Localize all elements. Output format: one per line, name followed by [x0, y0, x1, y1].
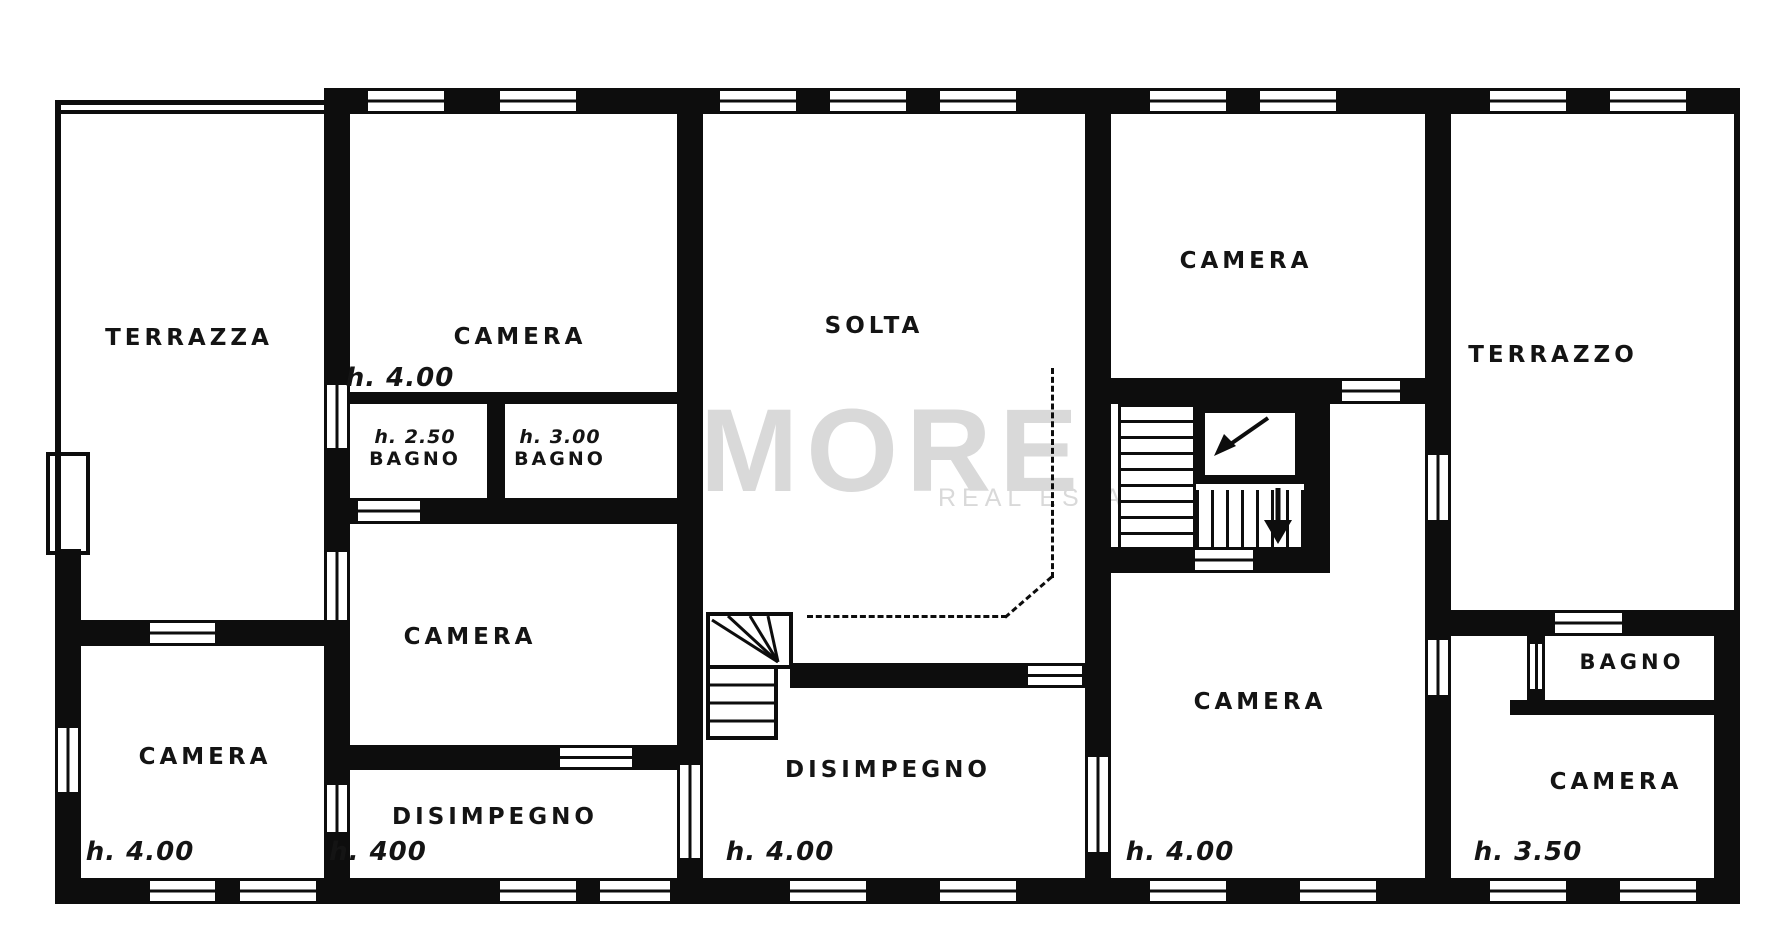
height-label: h. 3.00	[514, 426, 606, 448]
window	[1490, 88, 1566, 114]
room-label-bagno-2: h. 3.00 BAGNO	[514, 426, 606, 470]
dashed-line	[1051, 368, 1054, 578]
wall-terrace-parapet-left	[55, 100, 61, 549]
door-opening	[1085, 757, 1111, 852]
wall-terrace-parapet-right	[1734, 100, 1740, 620]
room-label-disimpegno-center: DISIMPEGNO	[785, 757, 991, 783]
window	[940, 88, 1016, 114]
room-label-camera-mid: CAMERA	[404, 624, 537, 650]
room-label-terrazzo: TERRAZZO	[1468, 342, 1638, 368]
height-label: h. 4.00	[1126, 837, 1235, 867]
window	[1260, 88, 1336, 114]
height-label: h. 3.50	[1474, 837, 1583, 867]
window	[1610, 88, 1686, 114]
room-label: BAGNO	[369, 448, 461, 470]
door-opening	[1555, 610, 1622, 636]
door-opening	[1342, 378, 1400, 404]
window	[830, 88, 906, 114]
dashed-line	[1004, 576, 1053, 619]
door-opening	[560, 745, 632, 770]
room-label-camera-br: CAMERA	[1550, 769, 1683, 795]
height-label: h. 400	[329, 837, 427, 867]
wall-left	[55, 549, 81, 904]
door-opening	[1425, 640, 1451, 695]
window	[1620, 878, 1696, 904]
wall-bagno-divider	[487, 404, 505, 500]
door-opening	[324, 785, 350, 832]
room-label-bagno-right: BAGNO	[1580, 650, 1685, 674]
room-label-solta: SOLTA	[825, 313, 924, 339]
window	[1150, 878, 1226, 904]
window	[55, 728, 81, 792]
terrace-step	[46, 452, 90, 555]
room-label-camera-top: CAMERA	[454, 324, 587, 350]
wall-terrace-parapet-top	[55, 110, 350, 114]
window	[1300, 878, 1376, 904]
window	[150, 620, 215, 646]
room-label-camera-stair-bottom: CAMERA	[1194, 689, 1327, 715]
stair-arrow-icon	[1206, 412, 1278, 460]
window	[1195, 547, 1253, 573]
corner-stairs	[706, 612, 794, 742]
wall-bagno-top	[350, 392, 677, 404]
window	[150, 878, 215, 904]
room-label-disimpegno-left: DISIMPEGNO	[392, 804, 598, 830]
window	[1150, 88, 1226, 114]
height-label: h. 2.50	[369, 426, 461, 448]
room-label: BAGNO	[514, 448, 606, 470]
floor-plan: GRUPPO MORE REAL ESTATE	[0, 0, 1786, 930]
room-label-bagno-1: h. 2.50 BAGNO	[369, 426, 461, 470]
door-opening	[1527, 644, 1545, 689]
window	[324, 552, 350, 620]
wall-terrazza-camera	[324, 88, 350, 904]
room-label-camera-bl: CAMERA	[139, 744, 272, 770]
window	[940, 878, 1016, 904]
height-label: h. 4.00	[346, 363, 455, 393]
door-opening	[677, 765, 703, 858]
dashed-line	[807, 615, 1007, 618]
door-opening	[1425, 455, 1451, 520]
window	[368, 88, 444, 114]
window	[790, 878, 866, 904]
window	[500, 878, 576, 904]
wall-stairwell	[1304, 398, 1330, 553]
stair-arrow-down-icon	[1258, 486, 1298, 546]
room-label-camera-stair-top: CAMERA	[1180, 248, 1313, 274]
door-opening	[1028, 663, 1082, 688]
door-opening	[358, 498, 420, 524]
wall-right	[1714, 620, 1740, 904]
window	[720, 88, 796, 114]
height-label: h. 4.00	[86, 837, 195, 867]
door-opening	[324, 385, 350, 448]
stairs-upper-flight	[1118, 404, 1196, 547]
window	[500, 88, 576, 114]
window	[1490, 878, 1566, 904]
window	[600, 878, 670, 904]
wall-bagno-r-bottom	[1510, 700, 1740, 715]
height-label: h. 4.00	[726, 837, 835, 867]
wall-terrace-parapet-top	[55, 100, 350, 105]
room-label-terrazza: TERRAZZA	[105, 325, 273, 351]
window	[240, 878, 316, 904]
